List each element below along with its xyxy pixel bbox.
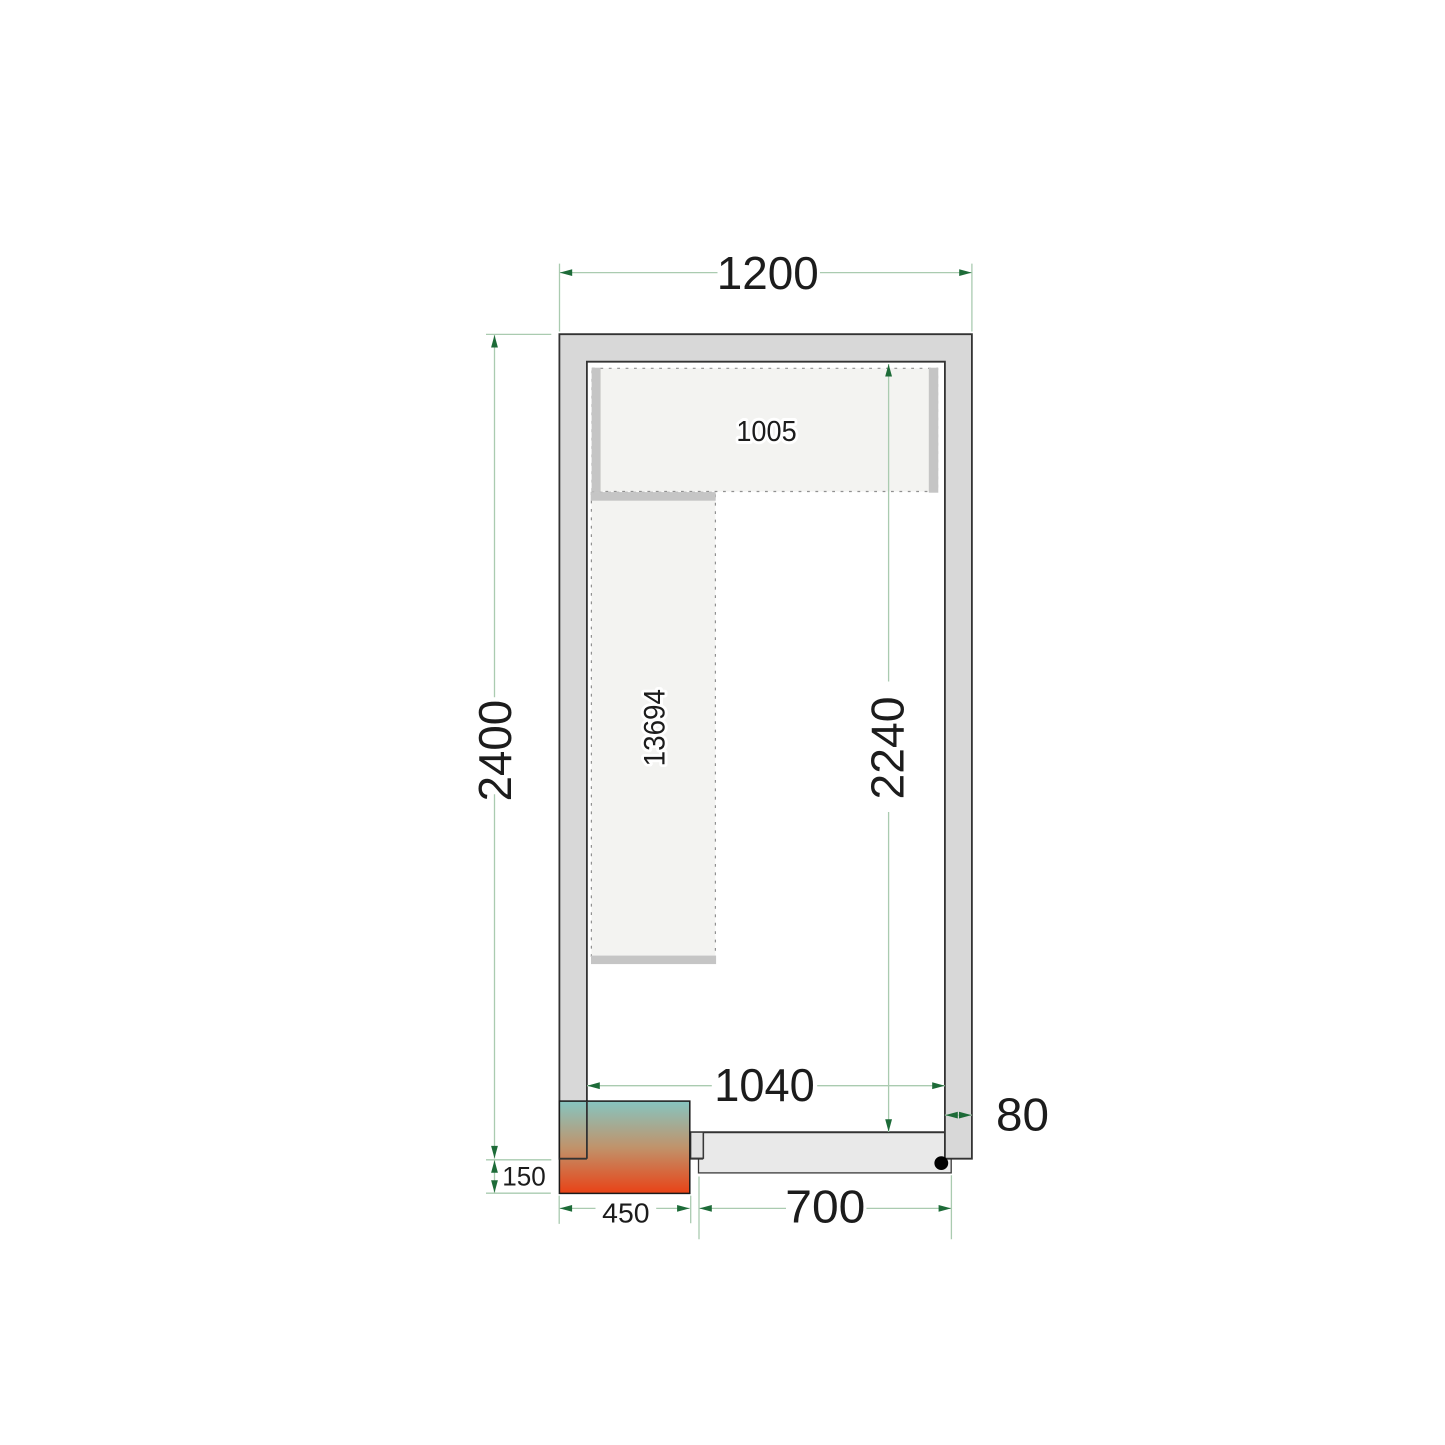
svg-text:700: 700 (785, 1181, 865, 1233)
svg-text:2400: 2400 (469, 700, 521, 802)
svg-text:80: 80 (996, 1088, 1049, 1140)
svg-text:150: 150 (502, 1162, 546, 1192)
svg-text:1200: 1200 (717, 247, 819, 299)
svg-text:1040: 1040 (714, 1059, 815, 1111)
svg-text:1005: 1005 (736, 416, 796, 448)
svg-text:13694: 13694 (639, 689, 672, 766)
svg-text:2240: 2240 (862, 697, 914, 800)
svg-text:450: 450 (602, 1197, 649, 1228)
